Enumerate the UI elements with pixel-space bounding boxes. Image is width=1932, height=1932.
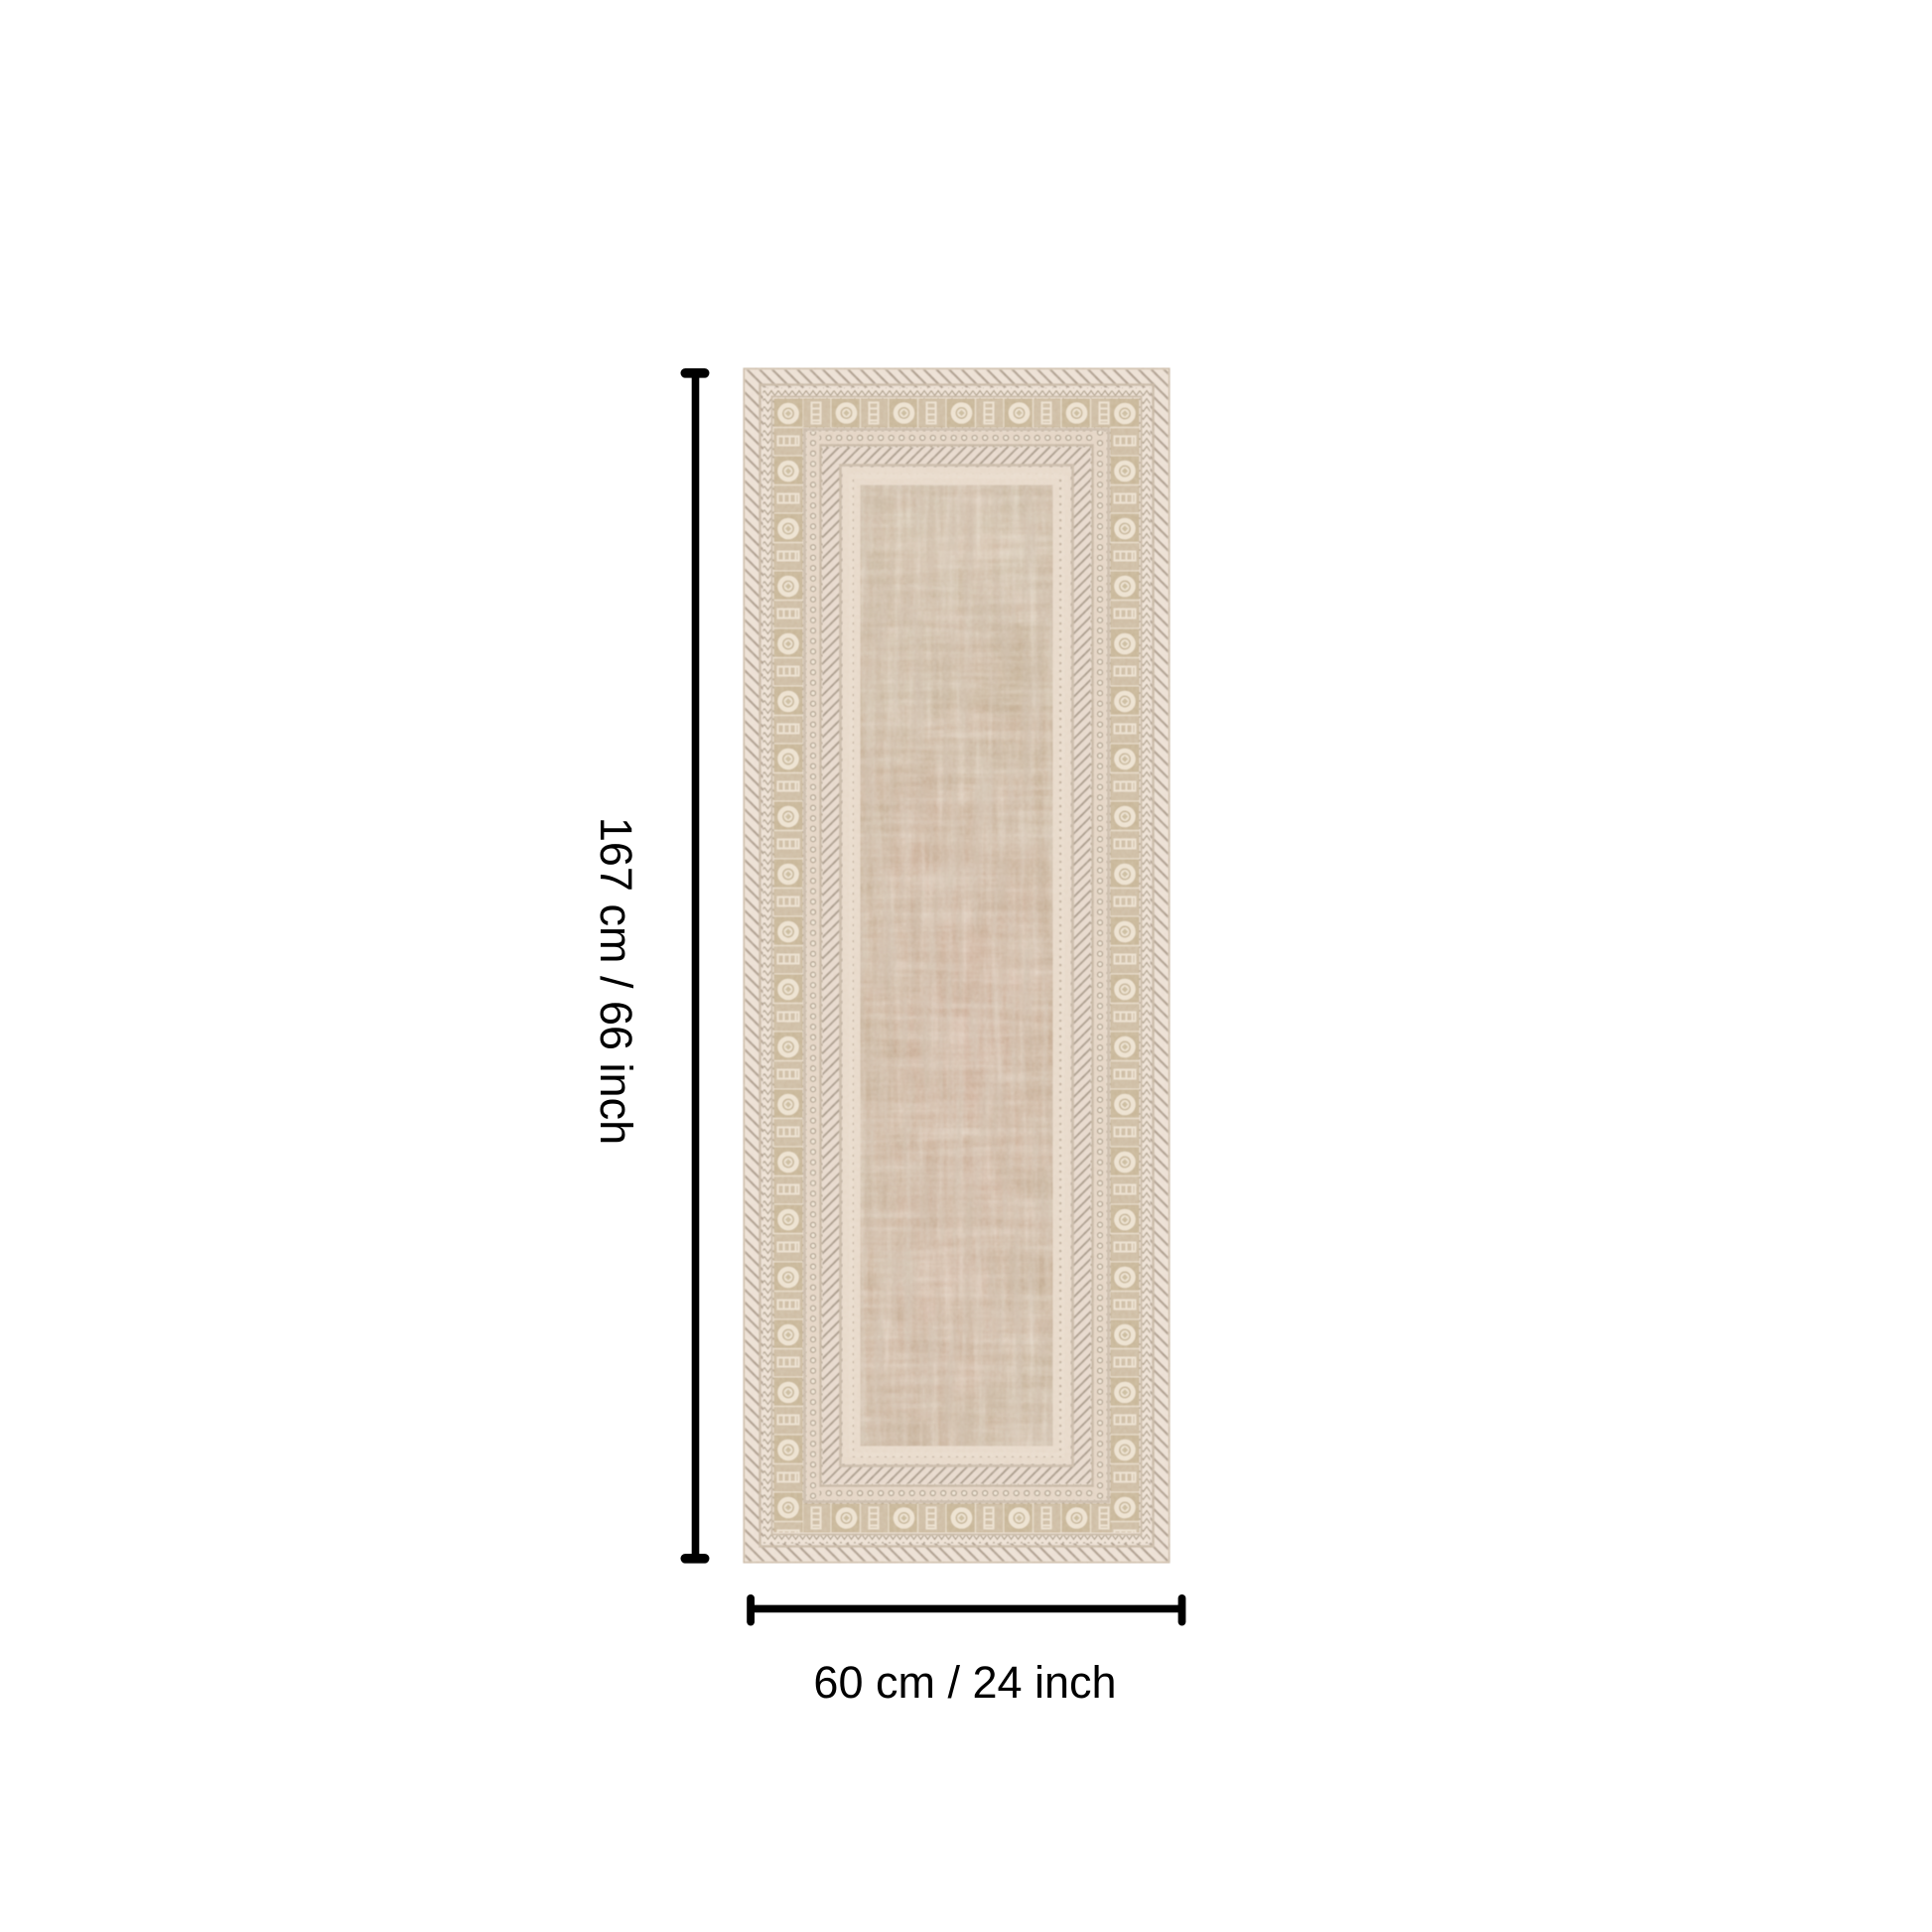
svg-text:167 cm / 66 inch: 167 cm / 66 inch	[591, 817, 641, 1145]
svg-text:60 cm / 24 inch: 60 cm / 24 inch	[813, 1657, 1116, 1708]
